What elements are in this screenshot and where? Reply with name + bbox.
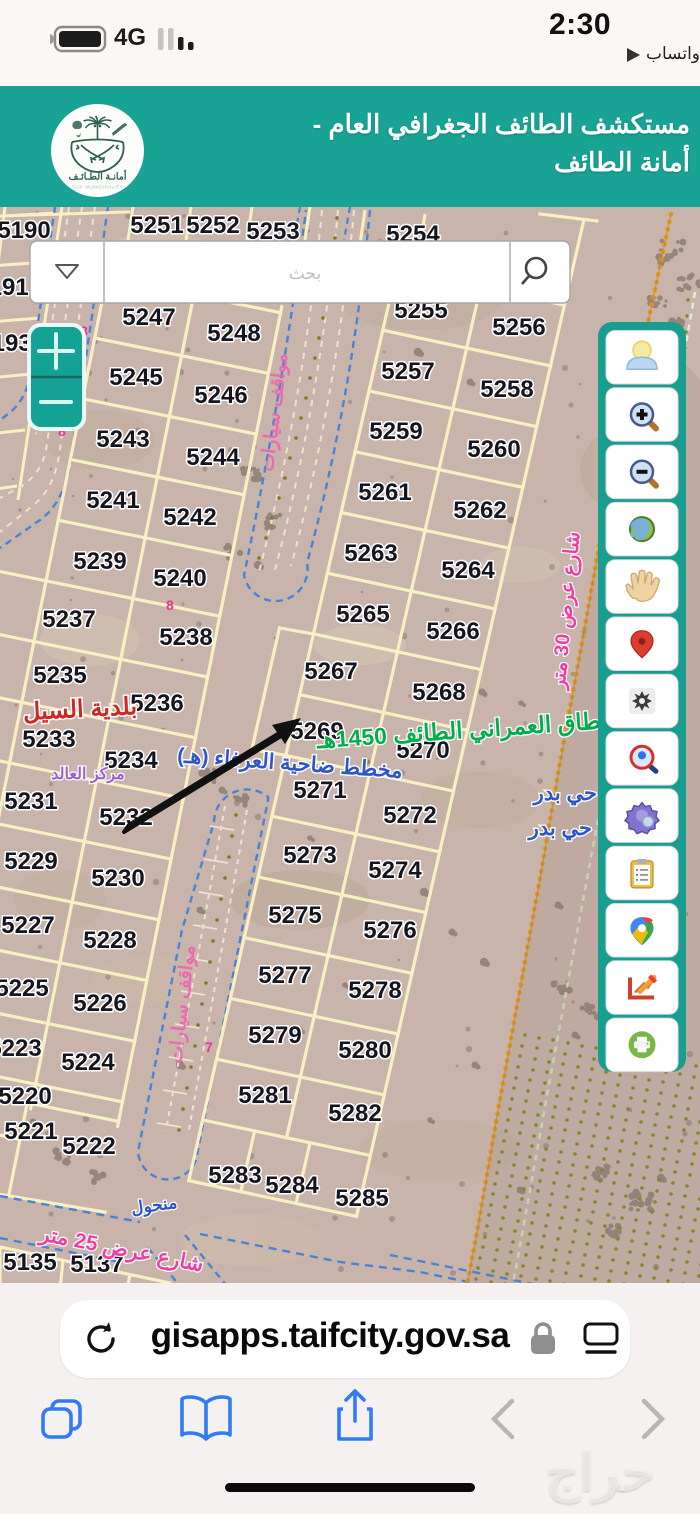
svg-text:5251: 5251 xyxy=(130,212,183,239)
svg-text:5227: 5227 xyxy=(1,912,54,939)
svg-text:5229: 5229 xyxy=(4,848,57,875)
svg-text:5264: 5264 xyxy=(441,557,495,584)
svg-text:5191: 5191 xyxy=(0,274,29,301)
svg-text:TAIF MUNICIPALITY: TAIF MUNICIPALITY xyxy=(72,185,124,191)
svg-text:5236: 5236 xyxy=(130,690,183,717)
svg-text:أمانـة الطـائـف: أمانـة الطـائـف xyxy=(68,170,126,183)
svg-text:5261: 5261 xyxy=(358,479,411,506)
svg-text:5241: 5241 xyxy=(86,487,139,514)
svg-text:5242: 5242 xyxy=(163,504,216,531)
svg-text:حي بدر: حي بدر xyxy=(532,782,597,806)
svg-text:5243: 5243 xyxy=(96,426,149,453)
svg-text:5244: 5244 xyxy=(186,444,240,471)
svg-text:5240: 5240 xyxy=(153,565,206,592)
svg-text:5190: 5190 xyxy=(0,217,51,244)
svg-text:8: 8 xyxy=(166,597,174,613)
svg-text:5223: 5223 xyxy=(0,1035,42,1062)
svg-text:5265: 5265 xyxy=(336,601,389,628)
svg-text:5233: 5233 xyxy=(22,726,75,753)
svg-text:5135: 5135 xyxy=(3,1249,56,1276)
svg-text:5284: 5284 xyxy=(265,1172,319,1199)
svg-text:حي بدر: حي بدر xyxy=(527,817,592,841)
svg-text:5247: 5247 xyxy=(122,304,175,331)
svg-text:7: 7 xyxy=(205,1039,213,1055)
svg-text:5226: 5226 xyxy=(73,990,126,1017)
svg-text:بحث: بحث xyxy=(289,264,321,283)
svg-text:5239: 5239 xyxy=(73,548,126,575)
svg-text:5278: 5278 xyxy=(348,977,401,1004)
svg-text:5237: 5237 xyxy=(42,606,95,633)
svg-text:5275: 5275 xyxy=(268,902,321,929)
svg-text:5252: 5252 xyxy=(186,212,239,239)
svg-text:5193: 5193 xyxy=(0,330,32,357)
svg-text:5282: 5282 xyxy=(328,1100,381,1127)
svg-text:5271: 5271 xyxy=(293,777,346,804)
svg-text:5225: 5225 xyxy=(0,975,49,1002)
svg-text:5262: 5262 xyxy=(453,497,506,524)
svg-text:5274: 5274 xyxy=(368,857,422,884)
svg-text:5266: 5266 xyxy=(426,618,479,645)
svg-text:5230: 5230 xyxy=(91,865,144,892)
svg-text:5281: 5281 xyxy=(238,1082,291,1109)
svg-text:5221: 5221 xyxy=(4,1118,57,1145)
svg-text:5259: 5259 xyxy=(369,418,422,445)
svg-text:5273: 5273 xyxy=(283,842,336,869)
svg-text:5268: 5268 xyxy=(412,679,465,706)
svg-text:5285: 5285 xyxy=(335,1185,388,1212)
svg-text:5246: 5246 xyxy=(194,382,247,409)
svg-text:5258: 5258 xyxy=(480,376,533,403)
svg-text:5279: 5279 xyxy=(248,1022,301,1049)
svg-text:5256: 5256 xyxy=(492,314,545,341)
svg-text:5228: 5228 xyxy=(83,927,136,954)
svg-text:5277: 5277 xyxy=(258,962,311,989)
svg-text:5272: 5272 xyxy=(383,802,436,829)
svg-text:5238: 5238 xyxy=(159,624,212,651)
svg-text:5257: 5257 xyxy=(381,358,434,385)
svg-text:5283: 5283 xyxy=(208,1162,261,1189)
svg-text:5248: 5248 xyxy=(207,320,260,347)
svg-text:5280: 5280 xyxy=(338,1037,391,1064)
svg-text:5260: 5260 xyxy=(467,436,520,463)
svg-text:5245: 5245 xyxy=(109,364,162,391)
svg-text:5222: 5222 xyxy=(62,1133,115,1160)
svg-text:5263: 5263 xyxy=(344,540,397,567)
svg-text:5220: 5220 xyxy=(0,1083,52,1110)
svg-text:مركز العالد: مركز العالد xyxy=(51,766,124,784)
svg-text:5231: 5231 xyxy=(4,788,57,815)
svg-text:5276: 5276 xyxy=(363,917,416,944)
svg-text:5267: 5267 xyxy=(304,658,357,685)
svg-text:5235: 5235 xyxy=(33,662,86,689)
svg-text:5224: 5224 xyxy=(61,1049,115,1076)
